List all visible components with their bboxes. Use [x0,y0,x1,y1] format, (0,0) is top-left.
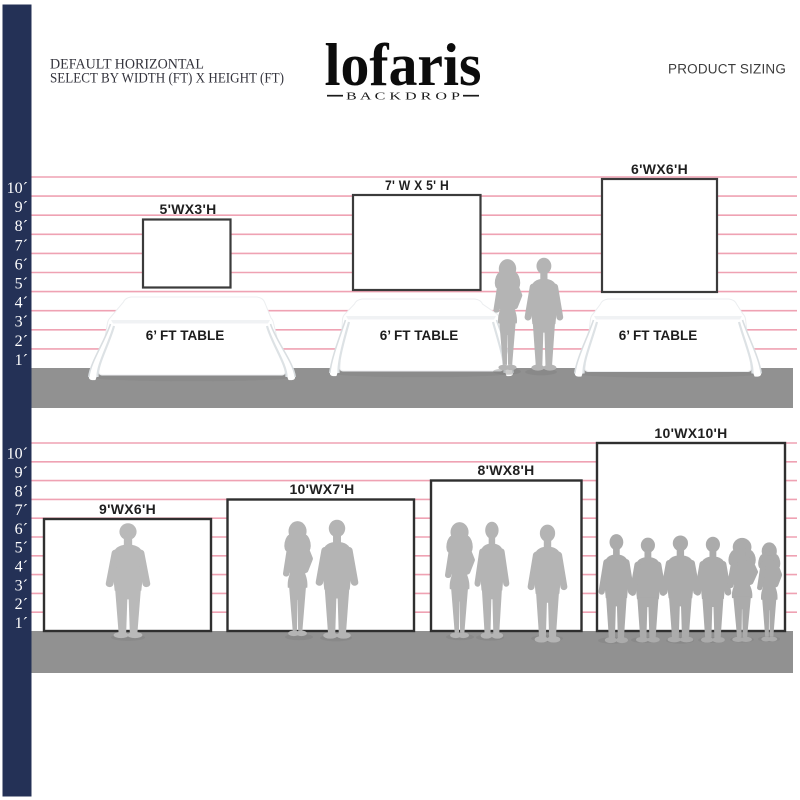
svg-text:3´: 3´ [15,314,28,331]
svg-text:1´: 1´ [15,615,28,632]
svg-text:3´: 3´ [15,577,28,594]
svg-text:5'WX3'H: 5'WX3'H [160,201,217,217]
svg-text:4´: 4´ [15,559,28,576]
svg-text:6’ FT TABLE: 6’ FT TABLE [619,328,698,343]
svg-text:2´: 2´ [15,333,28,350]
svg-text:SELECT BY WIDTH (FT) X HEIGHT: SELECT BY WIDTH (FT) X HEIGHT (FT) [50,71,284,87]
svg-text:9´: 9´ [15,199,28,216]
svg-text:5´: 5´ [15,540,28,557]
svg-text:10'WX7'H: 10'WX7'H [289,481,354,497]
svg-text:9'WX6'H: 9'WX6'H [99,501,156,517]
svg-text:6´: 6´ [15,521,28,538]
svg-text:2´: 2´ [15,596,28,613]
svg-text:lofaris: lofaris [325,32,482,98]
svg-text:7´: 7´ [15,237,28,254]
svg-text:PRODUCT SIZING: PRODUCT SIZING [668,62,786,77]
svg-text:5´: 5´ [15,276,28,293]
svg-text:9´: 9´ [15,465,28,482]
svg-text:7´: 7´ [15,502,28,519]
svg-text:B A C K D R O P: B A C K D R O P [346,91,460,103]
svg-text:6´: 6´ [15,256,28,273]
svg-text:7' W X 5' H: 7' W X 5' H [385,177,449,193]
svg-text:8´: 8´ [15,483,28,500]
svg-text:6’ FT TABLE: 6’ FT TABLE [146,328,225,343]
svg-text:10´: 10´ [7,180,28,197]
svg-text:8´: 8´ [15,218,28,235]
svg-text:6'WX6'H: 6'WX6'H [631,161,688,177]
svg-text:8'WX8'H: 8'WX8'H [478,462,535,478]
svg-text:10´: 10´ [7,446,28,463]
svg-text:1´: 1´ [15,352,28,369]
svg-text:10'WX10'H: 10'WX10'H [654,425,727,441]
svg-text:6’ FT TABLE: 6’ FT TABLE [380,328,459,343]
svg-text:4´: 4´ [15,295,28,312]
